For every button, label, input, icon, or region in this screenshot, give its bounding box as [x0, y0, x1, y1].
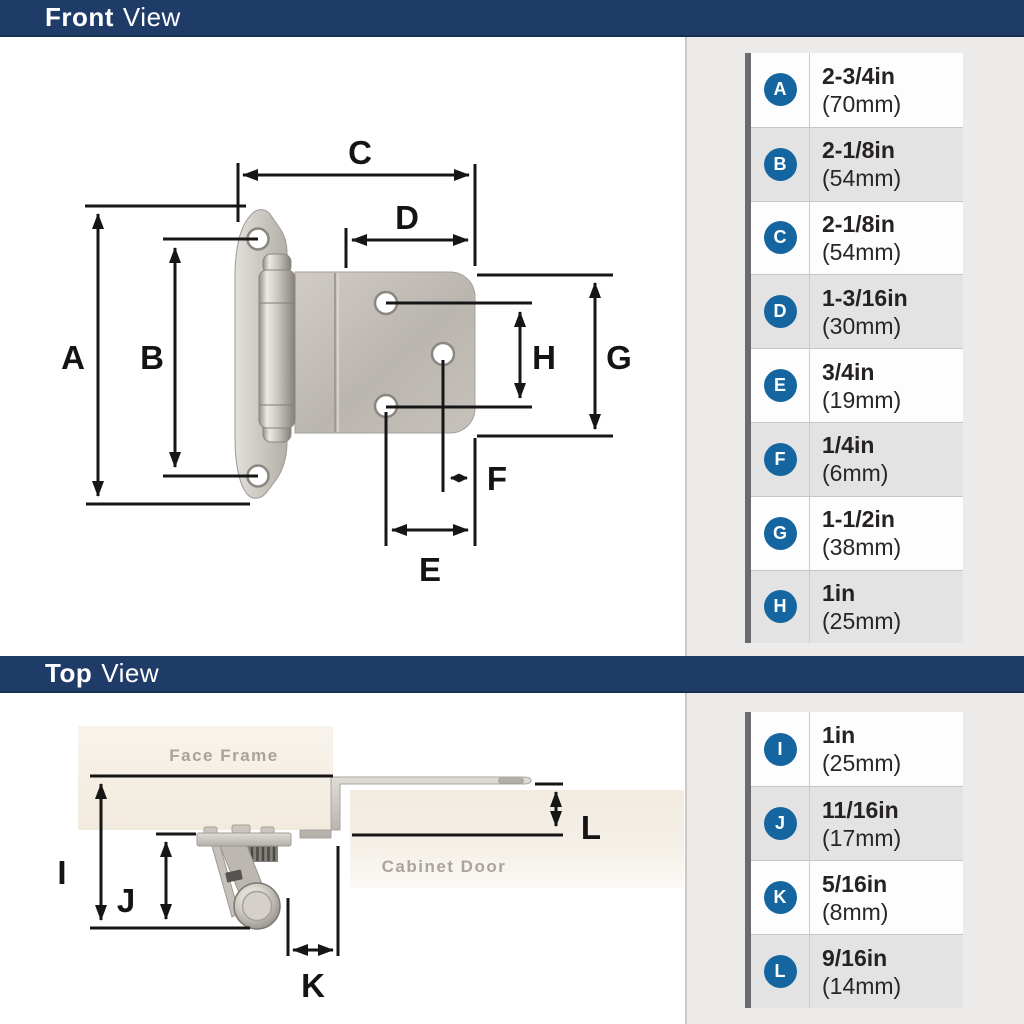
hinge-front-illustration: [235, 210, 475, 499]
value-cell: 1/4in (6mm): [810, 423, 963, 496]
dimension-value-inches: 2-3/4in: [822, 62, 963, 90]
dimension-label-i: I: [57, 854, 66, 891]
dimension-value-mm: (25mm): [822, 749, 963, 777]
table-row: J 11/16in (17mm): [751, 786, 963, 860]
value-cell: 1-1/2in (38mm): [810, 497, 963, 570]
dimension-badge: J: [764, 807, 797, 840]
dimension-badge: B: [764, 148, 797, 181]
dimension-value-mm: (17mm): [822, 824, 963, 852]
dimension-value-mm: (54mm): [822, 238, 963, 266]
dimension-value-mm: (38mm): [822, 533, 963, 561]
dimension-value-inches: 2-1/8in: [822, 210, 963, 238]
dimension-value-mm: (54mm): [822, 164, 963, 192]
table-row: C 2-1/8in (54mm): [751, 201, 963, 275]
badge-cell: A: [751, 53, 810, 127]
dimension-badge: C: [764, 221, 797, 254]
table-row: F 1/4in (6mm): [751, 422, 963, 496]
front-view-title-regular: View: [123, 2, 181, 32]
dimension-label-d: D: [395, 199, 419, 236]
dimension-value-inches: 1in: [822, 579, 963, 607]
badge-cell: F: [751, 423, 810, 496]
dimension-value-mm: (8mm): [822, 898, 963, 926]
value-cell: 1-3/16in (30mm): [810, 275, 963, 348]
dimension-value-inches: 9/16in: [822, 944, 963, 972]
value-cell: 1in (25mm): [810, 712, 963, 786]
badge-cell: G: [751, 497, 810, 570]
dimension-value-mm: (70mm): [822, 90, 963, 118]
value-cell: 2-1/8in (54mm): [810, 128, 963, 201]
front-view-header: FrontView: [0, 0, 1024, 37]
dimension-value-inches: 1-3/16in: [822, 284, 963, 312]
dimension-badge: F: [764, 443, 797, 476]
dimension-badge: H: [764, 590, 797, 623]
dimension-badge: K: [764, 881, 797, 914]
dimension-value-inches: 11/16in: [822, 796, 963, 824]
front-view-title-bold: Front: [45, 2, 114, 32]
dimension-badge: A: [764, 73, 797, 106]
dimension-label-c: C: [348, 134, 372, 171]
dimension-label-f: F: [487, 460, 507, 497]
dimension-value-mm: (6mm): [822, 459, 963, 487]
cabinet-door-label: Cabinet Door: [382, 857, 507, 876]
value-cell: 2-3/4in (70mm): [810, 53, 963, 127]
dimension-badge: L: [764, 955, 797, 988]
table-row: L 9/16in (14mm): [751, 934, 963, 1008]
dimension-value-mm: (19mm): [822, 386, 963, 414]
badge-cell: E: [751, 349, 810, 422]
front-view-diagram: A B C D E F G H: [0, 36, 685, 656]
value-cell: 2-1/8in (54mm): [810, 202, 963, 275]
dimension-value-mm: (25mm): [822, 607, 963, 635]
badge-cell: L: [751, 935, 810, 1008]
badge-cell: C: [751, 202, 810, 275]
dimension-badge: E: [764, 369, 797, 402]
table-row: D 1-3/16in (30mm): [751, 274, 963, 348]
badge-cell: D: [751, 275, 810, 348]
badge-cell: I: [751, 712, 810, 786]
dimension-label-j: J: [117, 882, 135, 919]
dimension-badge: D: [764, 295, 797, 328]
dimension-label-g: G: [606, 339, 632, 376]
table-row: K 5/16in (8mm): [751, 860, 963, 934]
table-row: B 2-1/8in (54mm): [751, 127, 963, 201]
dimension-value-inches: 2-1/8in: [822, 136, 963, 164]
badge-cell: K: [751, 861, 810, 934]
top-view-diagram: Face Frame Cabinet Door: [0, 692, 685, 1024]
table-row: H 1in (25mm): [751, 570, 963, 644]
bracket-plate: [197, 833, 291, 846]
top-dimension-table: I 1in (25mm) J 11/16in (17mm) K 5/16in (…: [745, 712, 963, 1008]
roller-hub: [243, 892, 272, 921]
dimension-label-h: H: [532, 339, 556, 376]
value-cell: 5/16in (8mm): [810, 861, 963, 934]
dimension-label-k: K: [301, 967, 325, 1004]
dimension-value-mm: (14mm): [822, 972, 963, 1000]
dimension-label-l: L: [581, 809, 601, 846]
face-frame-label: Face Frame: [169, 746, 279, 765]
value-cell: 3/4in (19mm): [810, 349, 963, 422]
dimension-value-inches: 3/4in: [822, 358, 963, 386]
dimension-label-b: B: [140, 339, 164, 376]
table-row: A 2-3/4in (70mm): [751, 53, 963, 127]
dimension-label-e: E: [419, 551, 441, 588]
table-row: I 1in (25mm): [751, 712, 963, 786]
value-cell: 9/16in (14mm): [810, 935, 963, 1008]
badge-cell: B: [751, 128, 810, 201]
hinge-arm-end-shade: [498, 778, 524, 785]
dimension-value-inches: 5/16in: [822, 870, 963, 898]
table-row: E 3/4in (19mm): [751, 348, 963, 422]
dimension-label-a: A: [61, 339, 85, 376]
face-frame-block: [78, 726, 333, 830]
value-cell: 1in (25mm): [810, 571, 963, 644]
dimension-value-inches: 1-1/2in: [822, 505, 963, 533]
dimension-value-inches: 1in: [822, 721, 963, 749]
value-cell: 11/16in (17mm): [810, 787, 963, 860]
dimension-badge: G: [764, 517, 797, 550]
table-row: G 1-1/2in (38mm): [751, 496, 963, 570]
top-view-header: TopView: [0, 656, 1024, 693]
badge-cell: J: [751, 787, 810, 860]
front-dimension-table: A 2-3/4in (70mm) B 2-1/8in (54mm) C 2-1/…: [745, 53, 963, 643]
bracket-bump: [232, 825, 250, 833]
dimension-value-mm: (30mm): [822, 312, 963, 340]
top-view-title-bold: Top: [45, 658, 92, 688]
dimension-value-inches: 1/4in: [822, 431, 963, 459]
top-view-title-regular: View: [101, 658, 159, 688]
hinge-dimension-sheet: A B C D E F G H: [0, 0, 1024, 1024]
badge-cell: H: [751, 571, 810, 644]
dimension-badge: I: [764, 733, 797, 766]
